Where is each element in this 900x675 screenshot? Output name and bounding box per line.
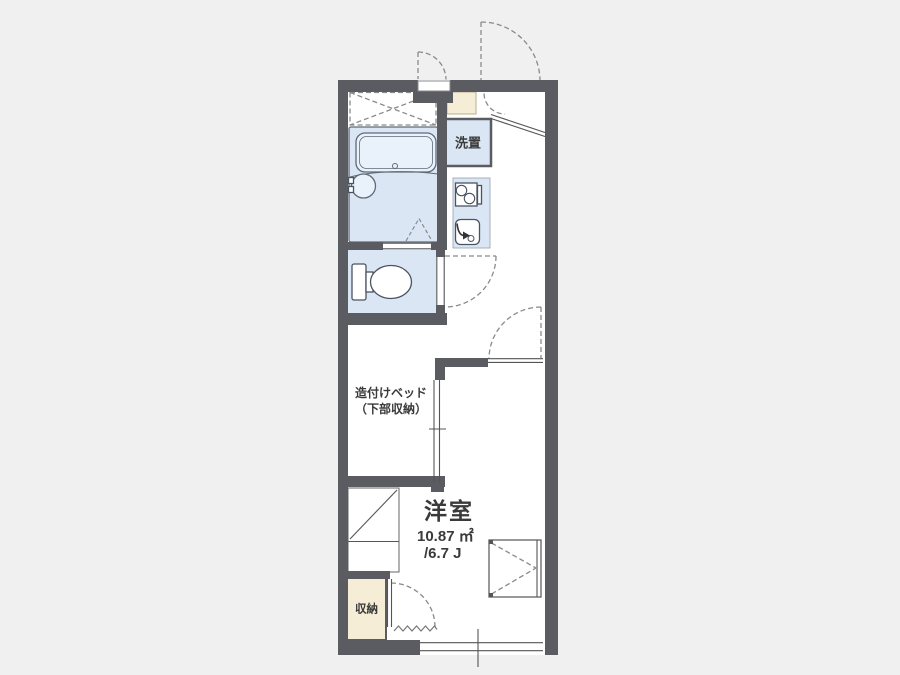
stove-burner [456,185,466,195]
wall-toilet-right-top [436,250,445,257]
wall-top-right [450,80,558,92]
wall-bath-toilet-right [431,242,447,250]
stove-grill [478,186,482,205]
bed-label-line2: （下部収納） [355,401,427,416]
room-label: 洋室 [424,498,474,524]
floorplan: 洗置 収納 [0,0,900,675]
wall-left [338,80,348,655]
counter-unit [348,488,399,572]
floorplan-canvas: 洗置 収納 [0,0,900,675]
service-door-arc [418,52,446,80]
toilet-bowl [371,266,412,299]
shutter-hinge [490,541,494,545]
entrance-door-arc [481,22,540,81]
washer-label: 洗置 [455,136,481,151]
area-sqm-label: 10.87 ㎡ [417,527,474,545]
service-door-leaf [418,81,450,91]
wall-storage-top [338,571,390,579]
wall-bath-divider [437,92,447,250]
area-jo-label: /6.7 J [424,545,462,562]
wall-top-left [338,80,418,92]
wall-right [545,80,558,655]
basin-faucet [349,178,354,184]
bathtub [356,133,436,172]
wall-toilet-right-bottom [436,305,445,314]
wall-bottom-left [338,640,420,655]
toilet-tank [352,264,366,300]
shutter-hinge [490,593,494,597]
storage-label: 収納 [355,602,378,616]
shutter-box [489,540,541,597]
stove-burner [464,193,474,203]
wall-bed-right-top [435,358,445,380]
washbasin [352,174,376,198]
wall-bed-bottom [338,476,445,487]
basin-faucet [349,187,354,193]
bed-label-line1: 造付けベッド [355,385,427,400]
wall-bath-toilet-left [338,242,383,250]
wall-toilet-bottom [338,313,447,325]
